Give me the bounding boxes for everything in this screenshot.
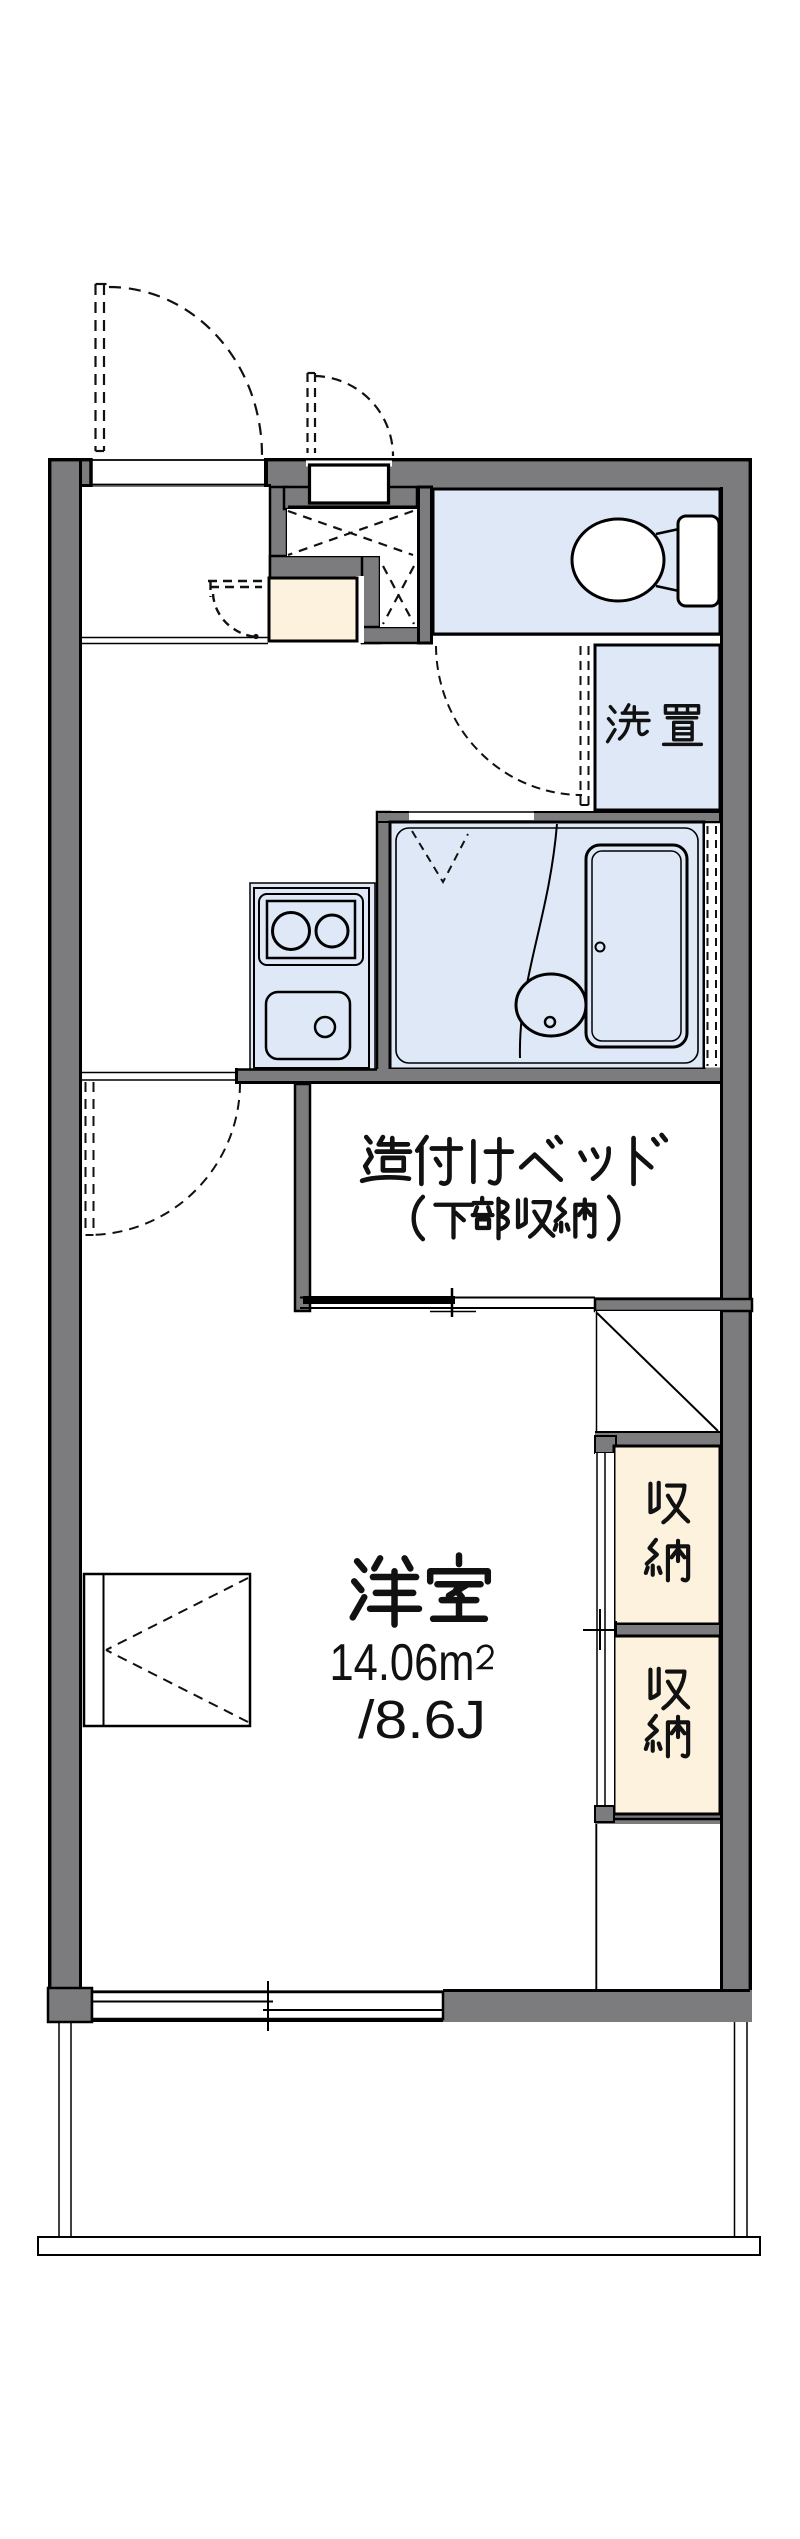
svg-text:/8.6J: /8.6J [358,1690,486,1750]
svg-text:14.06m: 14.06m [330,1634,475,1692]
